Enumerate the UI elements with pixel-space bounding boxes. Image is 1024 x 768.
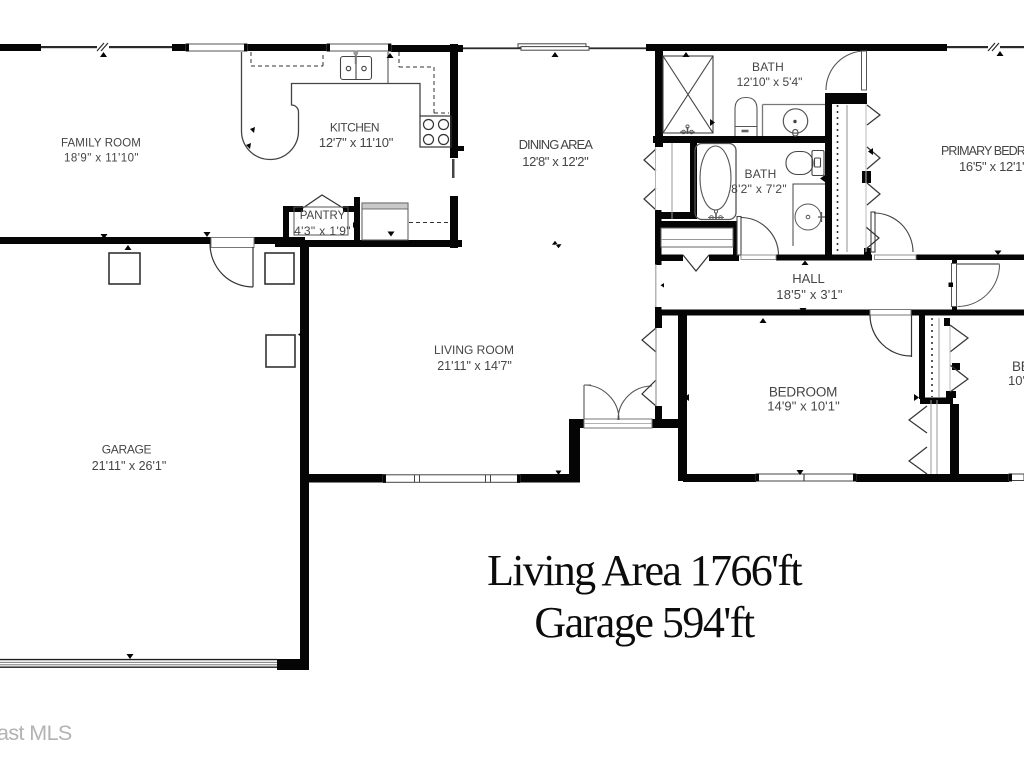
svg-text:10'1" x 9'6": 10'1" x 9'6" <box>1008 373 1024 388</box>
svg-text:16'5" x 12'1": 16'5" x 12'1" <box>959 159 1024 174</box>
svg-text:Garage 594'ft: Garage 594'ft <box>534 598 755 647</box>
svg-text:14'9" x 10'1": 14'9" x 10'1" <box>767 399 840 414</box>
svg-text:KITCHEN: KITCHEN <box>330 120 379 134</box>
svg-text:BATH: BATH <box>745 167 777 181</box>
svg-text:12'8" x 12'2": 12'8" x 12'2" <box>522 154 589 169</box>
svg-text:ast MLS: ast MLS <box>0 721 72 745</box>
svg-text:LIVING ROOM: LIVING ROOM <box>434 343 514 357</box>
svg-text:FAMILY ROOM: FAMILY ROOM <box>61 137 141 149</box>
svg-text:12'7" x 11'10": 12'7" x 11'10" <box>319 135 394 150</box>
svg-text:18'5" x 3'1": 18'5" x 3'1" <box>776 287 843 302</box>
svg-text:HALL: HALL <box>792 271 825 286</box>
svg-text:12'10" x 5'4": 12'10" x 5'4" <box>737 75 803 89</box>
svg-text:BEDROOM: BEDROOM <box>1012 359 1024 374</box>
svg-text:BEDROOM: BEDROOM <box>769 385 837 400</box>
svg-text:DINING AREA: DINING AREA <box>519 137 594 152</box>
svg-text:Living Area 1766'ft: Living Area 1766'ft <box>487 546 802 595</box>
svg-text:GARAGE: GARAGE <box>102 443 152 457</box>
svg-text:PRIMARY BEDROOM: PRIMARY BEDROOM <box>941 144 1024 158</box>
svg-text:PANTRY: PANTRY <box>300 210 346 222</box>
svg-text:8'2" x 7'2": 8'2" x 7'2" <box>731 182 787 196</box>
svg-text:21'11" x 26'1": 21'11" x 26'1" <box>92 459 167 473</box>
svg-text:BATH: BATH <box>752 60 784 74</box>
svg-text:4'3" x 1'9": 4'3" x 1'9" <box>294 224 351 238</box>
svg-text:18'9" x 11'10": 18'9" x 11'10" <box>64 153 139 165</box>
svg-text:21'11" x 14'7": 21'11" x 14'7" <box>437 359 512 373</box>
